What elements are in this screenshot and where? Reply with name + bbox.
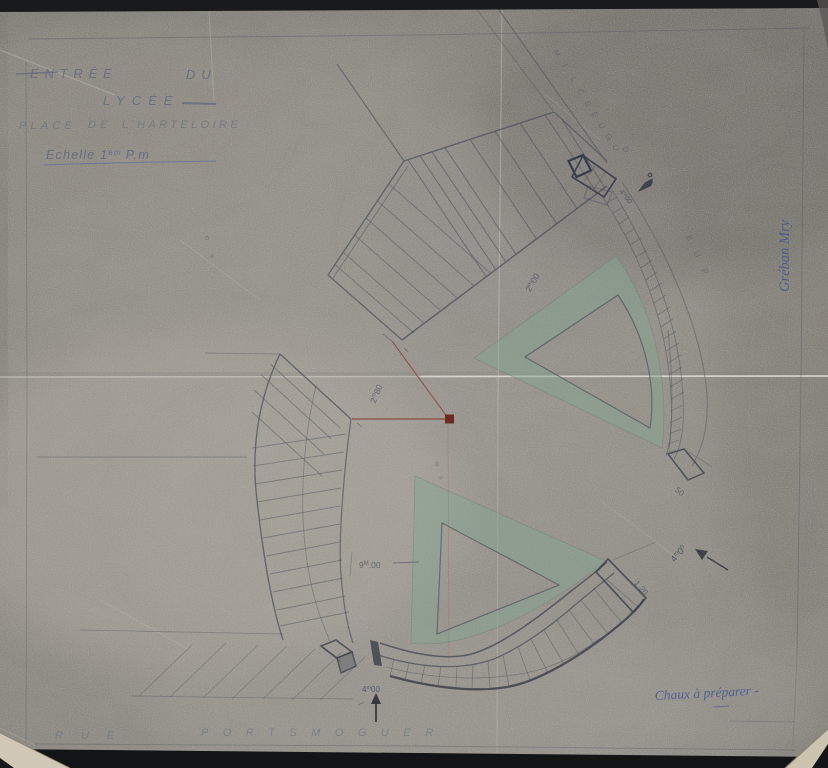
svg-text:ENTRÉE: ENTRÉE <box>30 66 118 81</box>
svg-text:Echelle 1emP.m: Echelle 1emP.m <box>46 148 150 162</box>
svg-text:4m00: 4m00 <box>362 685 380 694</box>
svg-text:PORTSMOGUER: PORTSMOGUER <box>201 727 448 739</box>
svg-text:Gréban Mry: Gréban Mry <box>777 219 793 292</box>
svg-text:9M.00: 9M.00 <box>359 560 381 570</box>
svg-text:L'HARTELOIRE: L'HARTELOIRE <box>122 119 241 131</box>
svg-text:LYCÉE: LYCÉE <box>103 93 179 108</box>
svg-text:DE: DE <box>88 119 112 131</box>
svg-text:RUE: RUE <box>55 730 132 742</box>
svg-text:PLACE: PLACE <box>19 120 76 132</box>
svg-text:DU: DU <box>186 67 216 82</box>
